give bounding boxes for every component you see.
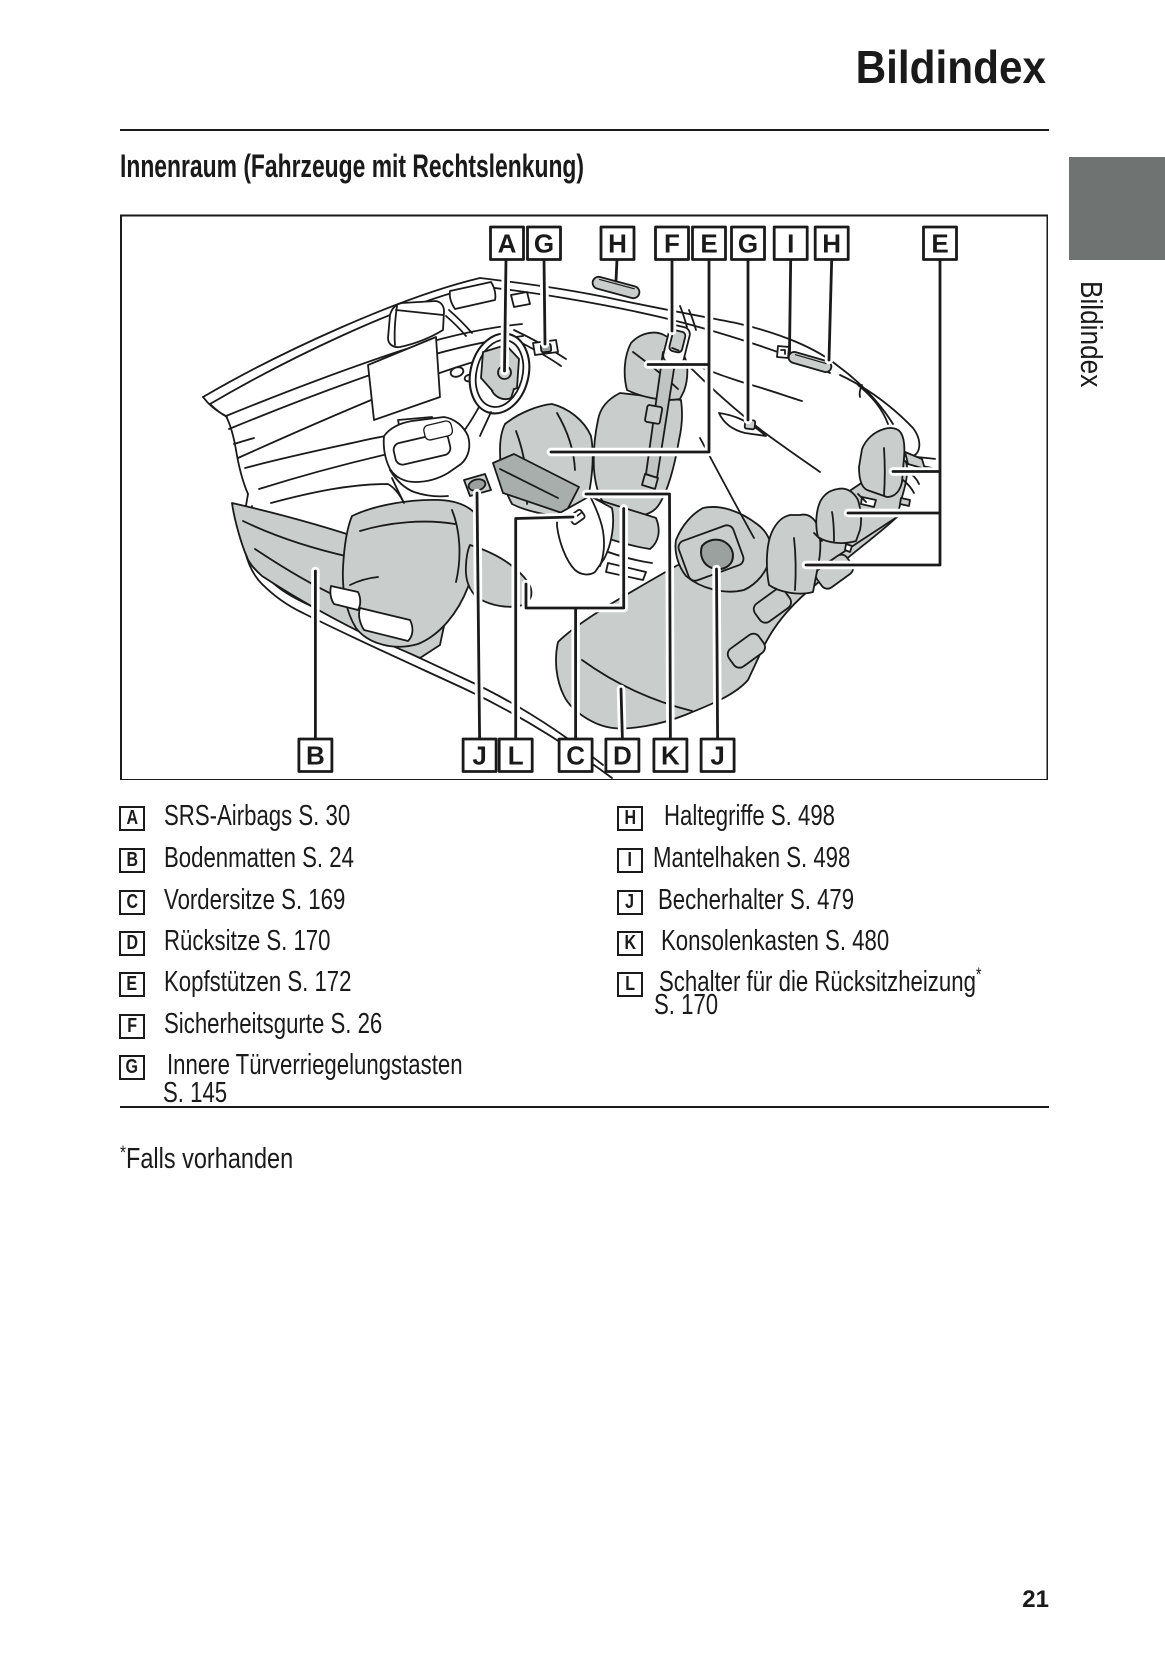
- svg-text:A: A: [498, 229, 517, 259]
- svg-text:G: G: [738, 229, 758, 259]
- svg-text:F: F: [664, 229, 680, 259]
- svg-text:D: D: [613, 741, 632, 771]
- svg-text:H: H: [822, 229, 841, 259]
- svg-text:B: B: [306, 741, 325, 771]
- svg-text:E: E: [931, 229, 948, 259]
- svg-text:J: J: [710, 741, 724, 771]
- svg-text:C: C: [566, 741, 585, 771]
- svg-text:J: J: [472, 741, 486, 771]
- svg-text:H: H: [608, 229, 627, 259]
- svg-text:I: I: [787, 229, 794, 259]
- svg-text:E: E: [700, 229, 717, 259]
- svg-text:G: G: [534, 229, 554, 259]
- svg-text:K: K: [661, 741, 680, 771]
- svg-text:L: L: [508, 741, 524, 771]
